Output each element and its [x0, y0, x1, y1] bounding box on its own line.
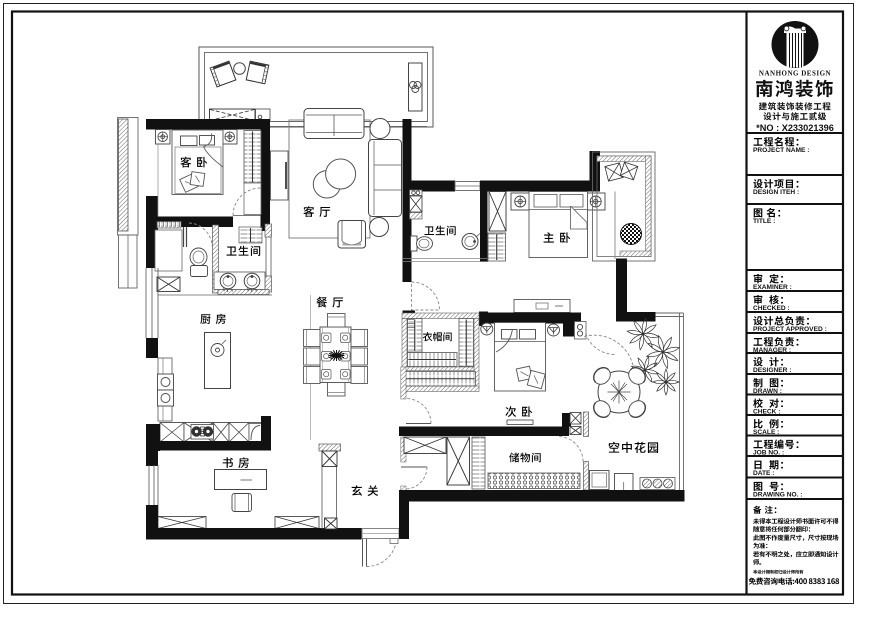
svg-text:CHECK :: CHECK :: [753, 408, 780, 415]
svg-text:DESIGNER :: DESIGNER :: [753, 367, 791, 374]
svg-text:DRAWN :: DRAWN :: [753, 388, 782, 395]
svg-text:MANAGER :: MANAGER :: [753, 347, 791, 354]
svg-text:PROJECT NAME :: PROJECT NAME :: [753, 147, 809, 154]
svg-text:*NO : X233021396: *NO : X233021396: [756, 123, 834, 133]
svg-text:EXAMINER :: EXAMINER :: [753, 284, 792, 291]
svg-text:CHECKED :: CHECKED :: [753, 305, 790, 312]
svg-text:SCALE :: SCALE :: [753, 429, 779, 436]
svg-text:NANHONG DESIGN: NANHONG DESIGN: [759, 70, 831, 78]
svg-text:PROJECT APPROVED :: PROJECT APPROVED :: [753, 326, 827, 333]
svg-text:TITLE :: TITLE :: [753, 218, 775, 225]
svg-text:DESIGN ITEH :: DESIGN ITEH :: [753, 189, 799, 196]
svg-text:DRAWING NO. :: DRAWING NO. :: [753, 491, 802, 498]
svg-text:JOB NO. :: JOB NO. :: [753, 449, 784, 456]
svg-text:DATE :: DATE :: [753, 470, 775, 477]
